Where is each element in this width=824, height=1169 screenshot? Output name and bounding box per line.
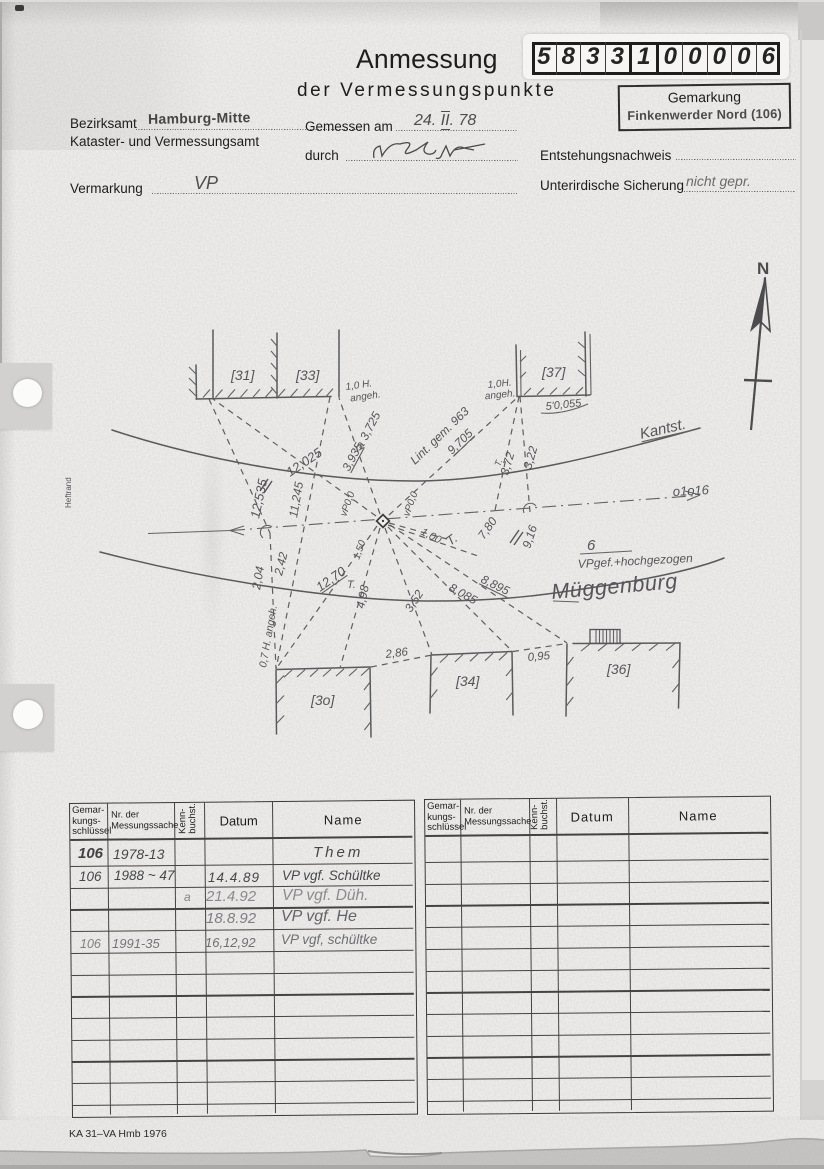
svg-text:1,50: 1,50 bbox=[351, 539, 368, 561]
svg-text:7,80: 7,80 bbox=[475, 514, 500, 541]
svg-text:12,70: 12,70 bbox=[313, 563, 349, 594]
svg-text:2,42: 2,42 bbox=[271, 550, 291, 577]
svg-text:[37]: [37] bbox=[541, 364, 566, 380]
svg-text:[33]: [33] bbox=[295, 367, 320, 383]
svg-text:6: 6 bbox=[587, 537, 596, 554]
svg-text:[31]: [31] bbox=[230, 367, 255, 383]
svg-text:9,16: 9,16 bbox=[520, 523, 541, 550]
svg-text:3,22: 3,22 bbox=[520, 444, 540, 471]
svg-text:5'0,055: 5'0,055 bbox=[545, 397, 583, 413]
svg-text:[3o]: [3o] bbox=[310, 692, 335, 708]
svg-text:[34]: [34] bbox=[455, 673, 480, 689]
svg-text:N: N bbox=[757, 259, 769, 278]
svg-text:0,7 H. angeh.: 0,7 H. angeh. bbox=[257, 604, 280, 668]
svg-text:8,085: 8,085 bbox=[447, 580, 480, 607]
svg-text:vP0,0: vP0,0 bbox=[401, 490, 420, 518]
svg-text:11,245: 11,245 bbox=[286, 481, 306, 519]
svg-text:8,895: 8,895 bbox=[479, 572, 512, 598]
svg-text:12,025: 12,025 bbox=[283, 444, 325, 479]
svg-text:Müggenburg: Müggenburg bbox=[550, 569, 678, 604]
svg-text:T.: T. bbox=[443, 530, 460, 548]
svg-text:0,95: 0,95 bbox=[527, 650, 551, 664]
svg-text:2,04: 2,04 bbox=[249, 565, 267, 592]
svg-text:[36]: [36] bbox=[606, 661, 631, 677]
svg-text:T.: T. bbox=[347, 579, 356, 591]
svg-text:o1o16: o1o16 bbox=[672, 482, 710, 499]
svg-text:vP0,0: vP0,0 bbox=[338, 490, 357, 518]
svg-text:12,535: 12,535 bbox=[247, 477, 270, 520]
svg-text:2,86: 2,86 bbox=[384, 646, 409, 661]
svg-text:4,98: 4,98 bbox=[353, 584, 372, 610]
svg-text:angeh.: angeh. bbox=[484, 388, 516, 402]
svg-text:1,00: 1,00 bbox=[419, 526, 444, 547]
